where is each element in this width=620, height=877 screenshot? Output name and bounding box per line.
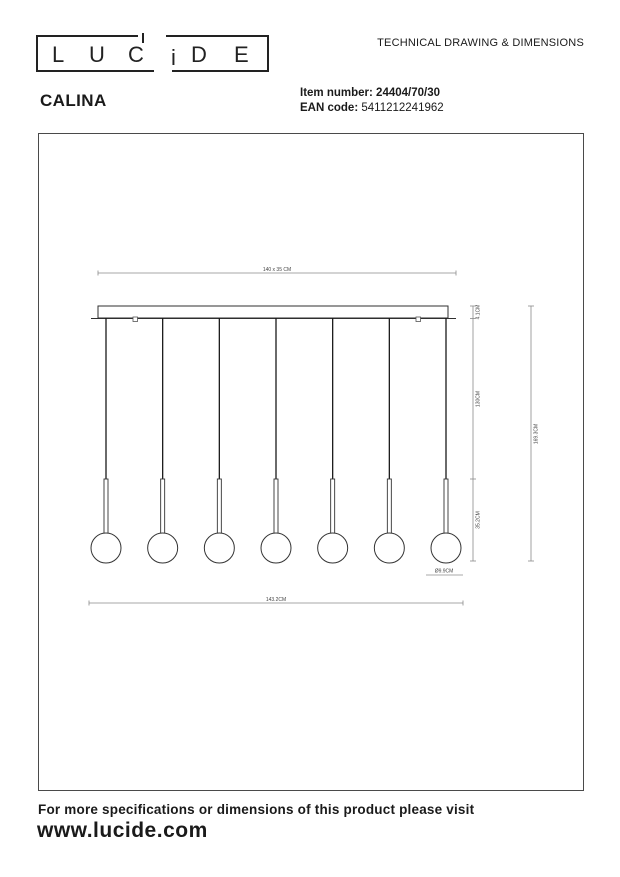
pendant-globe <box>318 533 348 563</box>
logo-letter-i: i <box>171 45 176 71</box>
pendants-group <box>91 318 461 563</box>
drawing-frame: 140 x 35 CM 143.2CM <box>38 133 584 791</box>
pendant-globe <box>148 533 178 563</box>
logo-letter-c: C <box>128 42 144 68</box>
dim-total-width-label: 143.2CM <box>266 597 286 603</box>
pendant-stem <box>387 479 391 534</box>
logo-letter-l: L <box>52 42 64 68</box>
logo-letter-d: D <box>191 42 207 68</box>
pendant-globe <box>204 533 234 563</box>
dim-globe-diameter: Ø9.9CM <box>426 569 463 576</box>
ean-code-value: 5411212241962 <box>361 102 443 114</box>
ceiling-plate <box>98 306 448 318</box>
pendant-globe <box>374 533 404 563</box>
pendant-globe <box>261 533 291 563</box>
footer-text: For more specifications or dimensions of… <box>38 802 474 817</box>
dim-cable-label: 130CM <box>476 391 482 407</box>
item-number-value: 24404/70/30 <box>376 87 440 99</box>
dim-base-plate-label: 140 x 35 CM <box>263 267 291 273</box>
pendant-stem <box>104 479 108 534</box>
pendant-stem <box>217 479 221 534</box>
pendant-globe <box>431 533 461 563</box>
dim-canopy-height-label: 4.1CM <box>476 305 482 320</box>
mounting-screw-right <box>416 317 421 322</box>
pendant-stem <box>444 479 448 534</box>
product-name: CALINA <box>40 91 107 111</box>
dim-total-height: 169.3CM <box>528 306 540 561</box>
ean-code-row: EAN code: 5411212241962 <box>300 101 444 116</box>
product-meta: Item number: 24404/70/30 EAN code: 54112… <box>300 86 444 115</box>
pendant-globe <box>91 533 121 563</box>
footer-website-link[interactable]: www.lucide.com <box>37 819 208 843</box>
logo-border-gap-bottom <box>154 69 172 73</box>
lucide-logo: L U C i D E <box>36 35 269 72</box>
dim-base-plate: 140 x 35 CM <box>98 267 456 276</box>
mounting-screw-left <box>133 317 138 322</box>
document-title: TECHNICAL DRAWING & DIMENSIONS <box>377 37 584 49</box>
technical-drawing: 140 x 35 CM 143.2CM <box>39 134 583 790</box>
dim-total-height-label: 169.3CM <box>534 424 540 444</box>
spec-sheet-page: L U C i D E TECHNICAL DRAWING & DIMENSIO… <box>0 0 620 877</box>
item-number-label: Item number: <box>300 87 373 99</box>
pendant-stem <box>331 479 335 534</box>
dim-globe-diameter-label: Ø9.9CM <box>435 569 454 575</box>
logo-letter-u: U <box>89 42 105 68</box>
dim-total-width: 143.2CM <box>89 597 463 606</box>
pendant-stem <box>161 479 165 534</box>
dim-lamp-section-label: 35.2CM <box>476 511 482 529</box>
item-number-row: Item number: 24404/70/30 <box>300 86 444 101</box>
logo-letter-e: E <box>234 42 249 68</box>
logo-accent-tick <box>142 33 144 43</box>
pendant-stem <box>274 479 278 534</box>
ean-code-label: EAN code: <box>300 102 358 114</box>
dim-chain-right: 4.1CM 130CM 35.2CM <box>470 305 482 561</box>
